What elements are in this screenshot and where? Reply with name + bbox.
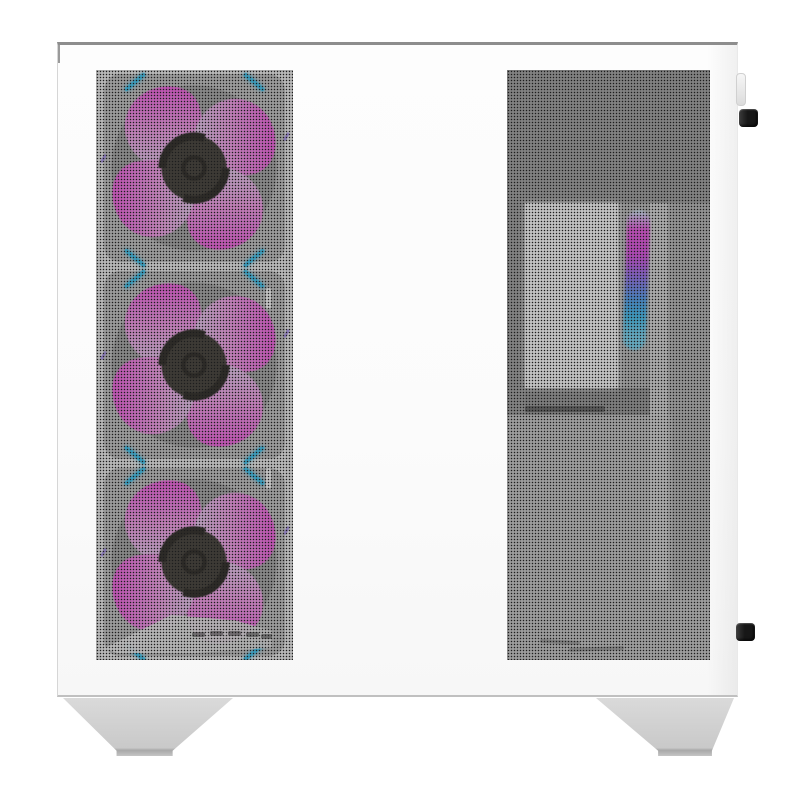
photo-stage bbox=[0, 0, 800, 800]
case-foot-right bbox=[596, 698, 734, 756]
case-foot-left bbox=[63, 698, 233, 756]
case-body bbox=[57, 42, 738, 697]
product-photo-pc-case: { "scene": { "subject": "White mid-tower… bbox=[0, 0, 800, 800]
mesh-texture bbox=[96, 70, 293, 660]
front-mesh-panel bbox=[96, 70, 293, 660]
side-mesh-panel bbox=[507, 70, 710, 660]
thumbscrew-bottom bbox=[736, 623, 755, 641]
mesh-texture bbox=[507, 70, 710, 660]
case-corner-seam bbox=[58, 45, 60, 63]
rear-panel-tab bbox=[736, 73, 746, 106]
thumbscrew-top bbox=[739, 109, 758, 127]
